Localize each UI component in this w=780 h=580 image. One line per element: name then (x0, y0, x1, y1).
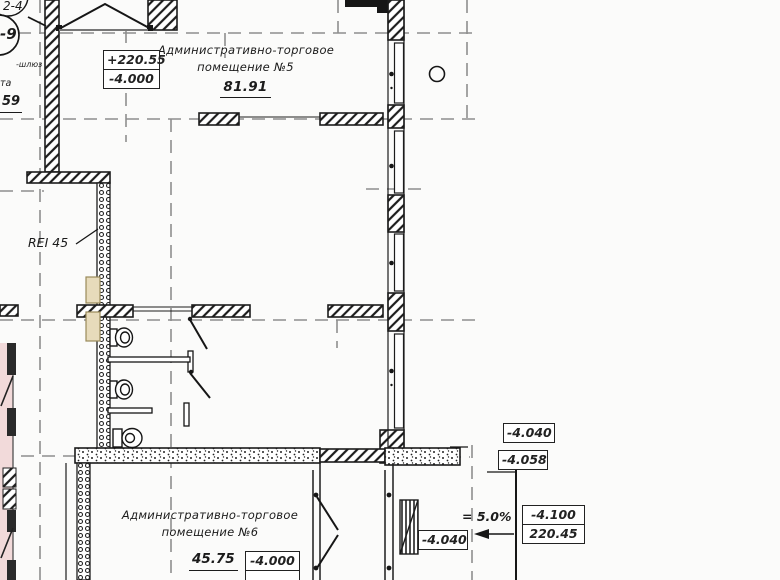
grid-bubble-1-label: 2-4 (3, 0, 23, 15)
rei-leader-line (76, 229, 98, 244)
room6-title-line1: Административно-торговое (120, 508, 300, 523)
entrance-opening-symbol (59, 4, 151, 29)
neighbor-unit-zone (0, 343, 16, 580)
edge-word-label: та (0, 78, 11, 90)
room5-title-line1: Административно-торговое (158, 43, 333, 58)
room5-title-line2: помещение №5 (158, 60, 333, 75)
door-leaf (184, 403, 189, 426)
level-box-left-of-ramp: -4.040 (418, 530, 468, 550)
sink-fixture (113, 429, 122, 447)
sanitary-fixtures (108, 328, 190, 448)
fire-rating-label: REI 45 (28, 235, 68, 251)
level-box-room5: +220.55 -4.000 (103, 50, 160, 89)
clipped-row (246, 570, 299, 580)
level-box-right-top: -4.040 (503, 423, 555, 443)
room6-label: Административно-торговое помещение №6 (120, 508, 300, 540)
door-swing (189, 318, 207, 349)
floor-plan-screenshot: Административно-торговое помещение №5 81… (0, 0, 780, 580)
wc-partition (108, 408, 152, 413)
elevation-absolute: 220.45 (523, 524, 584, 543)
room5-area: 81.91 (220, 79, 270, 99)
airlock-label: -шлюз (16, 60, 42, 70)
elevation-absolute: +220.55 (104, 51, 159, 69)
grid-bubble-2-label: -9 (0, 25, 17, 45)
slope-label: = 5.0% (462, 509, 512, 525)
edge-area-label: 59 (0, 94, 22, 113)
room5-label: Административно-торговое помещение №5 81… (158, 43, 333, 98)
door-swing (190, 373, 210, 398)
column-circle-symbol (430, 67, 445, 82)
level-box-right-mid: -4.058 (498, 450, 548, 470)
room6-area: 45.75 (189, 551, 238, 571)
elevation-relative: -4.000 (104, 69, 159, 88)
level-box-room6: -4.000 (245, 551, 300, 580)
level-box-ramp: -4.100 220.45 (522, 505, 585, 544)
room6-title-line2: помещение №6 (120, 525, 300, 540)
wc-partition (108, 357, 190, 362)
elevation-relative: -4.100 (523, 506, 584, 524)
slope-arrowhead (474, 529, 489, 539)
